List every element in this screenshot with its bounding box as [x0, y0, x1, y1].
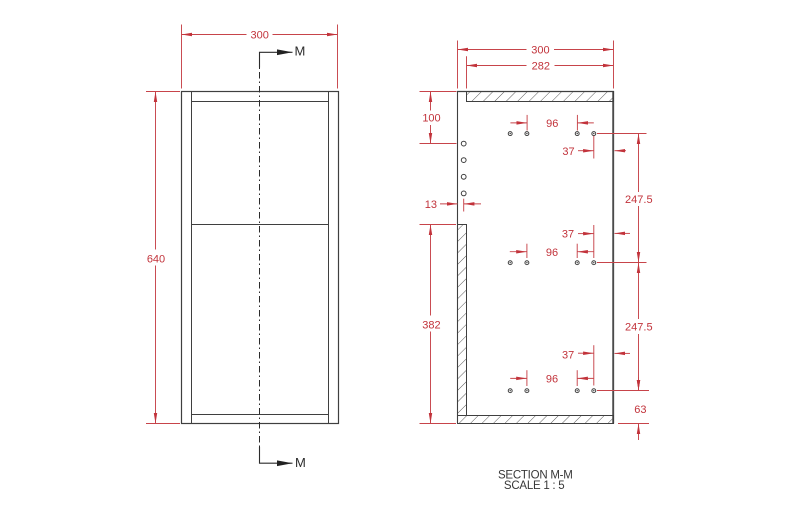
svg-text:247.5: 247.5 [625, 321, 653, 333]
svg-text:300: 300 [251, 30, 269, 42]
svg-text:37: 37 [562, 229, 574, 241]
svg-text:382: 382 [422, 319, 440, 331]
svg-text:96: 96 [546, 247, 558, 259]
svg-text:37: 37 [562, 350, 574, 362]
svg-text:640: 640 [147, 253, 165, 265]
svg-text:M: M [295, 43, 306, 58]
svg-text:300: 300 [531, 45, 549, 57]
svg-text:37: 37 [562, 146, 574, 158]
svg-text:96: 96 [546, 374, 558, 386]
svg-text:247.5: 247.5 [625, 194, 653, 206]
svg-text:M: M [295, 455, 306, 470]
svg-text:13: 13 [425, 199, 437, 211]
svg-text:96: 96 [546, 118, 558, 130]
svg-text:100: 100 [422, 113, 440, 125]
svg-text:63: 63 [634, 404, 646, 416]
svg-text:SCALE 1 : 5: SCALE 1 : 5 [504, 480, 565, 492]
svg-text:282: 282 [532, 61, 550, 73]
